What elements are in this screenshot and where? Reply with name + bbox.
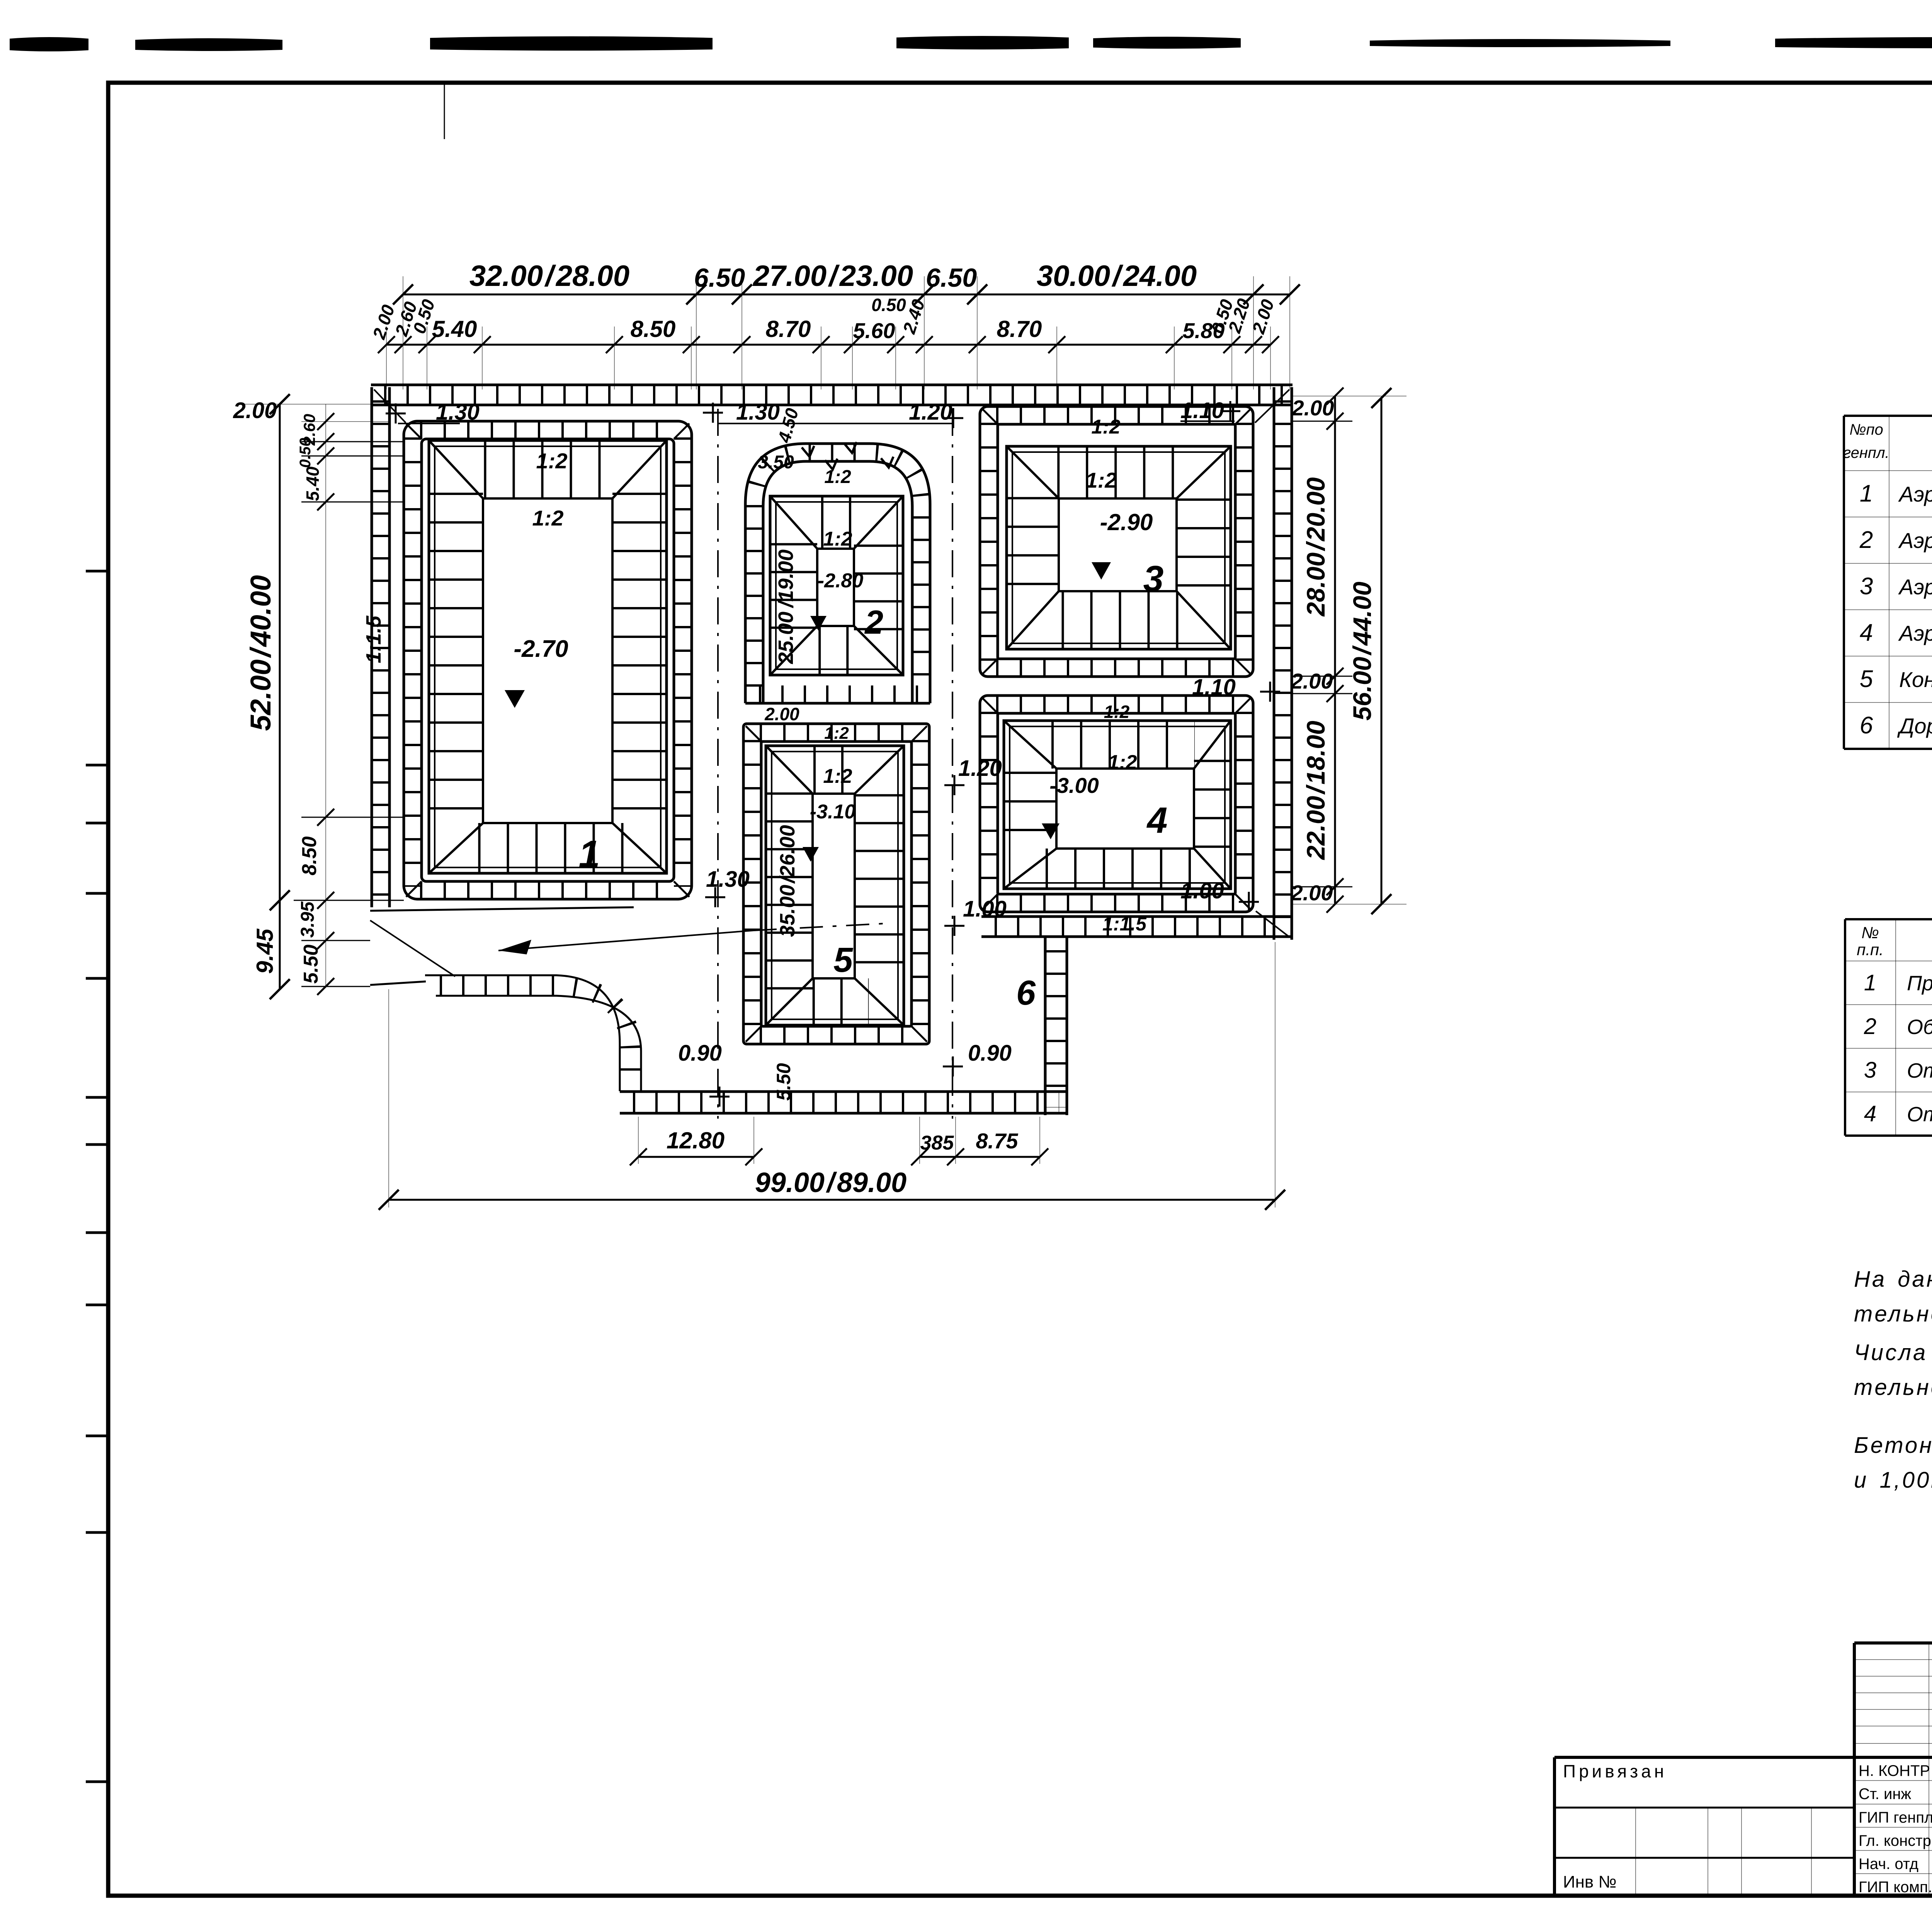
svg-text:№по: №по <box>1849 421 1883 438</box>
svg-text:22.00 / 18.00: 22.00 / 18.00 <box>1301 721 1330 861</box>
svg-text:2.00: 2.00 <box>764 704 799 724</box>
svg-text:1:2: 1:2 <box>1086 468 1117 492</box>
svg-text:1:2: 1:2 <box>532 506 564 530</box>
svg-text:1:2: 1:2 <box>536 449 568 473</box>
svg-text:Аэрируемый биопруд очистки I с: Аэрируемый биопруд очистки I ступени <box>1898 482 1932 506</box>
svg-text:1: 1 <box>1864 970 1876 995</box>
svg-text:На данном чертеже изображен: На данном чертеже изображен генплан соор… <box>1854 1267 1932 1292</box>
svg-text:3.50: 3.50 <box>758 452 794 473</box>
svg-text:1:2: 1:2 <box>823 528 852 550</box>
svg-text:Откос, укрепленный посевом мно: Откос, укрепленный посевом многолетних т… <box>1907 1103 1932 1126</box>
svg-text:тельностью 400 м³/сутки.: тельностью 400 м³/сутки. <box>1854 1375 1932 1400</box>
svg-text:25.00 /19.00: 25.00 /19.00 <box>774 549 798 664</box>
svg-text:1: 1 <box>1860 480 1873 507</box>
svg-text:№: № <box>1861 923 1879 942</box>
svg-text:Привязан: Привязан <box>1563 1761 1667 1781</box>
svg-text:8.75: 8.75 <box>976 1129 1019 1153</box>
svg-text:385: 385 <box>920 1132 954 1154</box>
svg-text:2: 2 <box>1859 527 1873 553</box>
svg-text:Числа в знаменателе относятс: Числа в знаменателе относятся к сооружен… <box>1854 1340 1932 1365</box>
svg-text:0.50: 0.50 <box>297 438 314 468</box>
svg-text:1:2: 1:2 <box>823 765 852 787</box>
svg-text:1:2: 1:2 <box>1104 702 1130 722</box>
svg-text:1.30: 1.30 <box>436 400 480 425</box>
svg-text:1.20: 1.20 <box>958 756 1002 781</box>
svg-text:тельностью 700 м³/сутки: тельностью 700 м³/сутки <box>1854 1301 1932 1327</box>
svg-text:4: 4 <box>1864 1101 1876 1126</box>
svg-text:генпл.: генпл. <box>1843 444 1889 461</box>
svg-text:1.30: 1.30 <box>706 867 750 892</box>
svg-text:-2.90: -2.90 <box>1100 509 1153 535</box>
svg-text:-2.70: -2.70 <box>514 636 568 662</box>
svg-text:8.50: 8.50 <box>298 836 321 875</box>
svg-text:1: 1 <box>578 833 600 876</box>
svg-text:1:2: 1:2 <box>824 467 851 487</box>
svg-text:1.20: 1.20 <box>909 400 952 425</box>
svg-text:Обочина, укрепленная травосмес: Обочина, укрепленная травосмесью <box>1907 1015 1932 1039</box>
svg-text:4: 4 <box>1860 619 1873 646</box>
svg-text:ГИП комп.: ГИП комп. <box>1859 1879 1932 1896</box>
svg-text:Аэрируемый биопруд доочистки I: Аэрируемый биопруд доочистки I ступени <box>1898 575 1932 599</box>
svg-text:12.80: 12.80 <box>667 1128 724 1153</box>
svg-text:1:2: 1:2 <box>824 724 849 743</box>
svg-text:8.70: 8.70 <box>766 316 811 342</box>
svg-text:2.00: 2.00 <box>1292 396 1334 420</box>
svg-text:6: 6 <box>1016 974 1036 1012</box>
svg-text:1:1.5: 1:1.5 <box>1102 913 1147 935</box>
svg-text:и 1,00м ниже уреза воды во все: и 1,00м ниже уреза воды во всех биопруда… <box>1854 1468 1932 1493</box>
svg-text:30.00 / 24.00: 30.00 / 24.00 <box>1037 260 1197 293</box>
svg-text:2.00: 2.00 <box>233 398 277 423</box>
svg-text:Дорога: Дорога <box>1897 714 1932 738</box>
svg-text:1:2: 1:2 <box>1108 751 1137 774</box>
svg-text:5.40: 5.40 <box>432 316 477 342</box>
svg-text:35.00 /26.00: 35.00 /26.00 <box>776 825 799 937</box>
svg-text:Проезд: щебень-15 см; песок-2: Проезд: щебень-15 см; песок-20 см. <box>1907 972 1932 995</box>
svg-text:6.50: 6.50 <box>694 263 745 293</box>
svg-text:0.50: 0.50 <box>871 295 906 315</box>
svg-text:5.50: 5.50 <box>300 944 322 983</box>
svg-text:6: 6 <box>1860 712 1873 739</box>
svg-text:8.50: 8.50 <box>631 316 676 342</box>
svg-text:2.00: 2.00 <box>1291 669 1333 693</box>
svg-text:1.00: 1.00 <box>1180 878 1224 903</box>
svg-text:3: 3 <box>1860 573 1873 600</box>
svg-text:2.00: 2.00 <box>1291 881 1333 905</box>
svg-text:1:1.5: 1:1.5 <box>362 615 385 663</box>
svg-text:56.00 / 44.00: 56.00 / 44.00 <box>1348 582 1376 721</box>
svg-text:3: 3 <box>1864 1058 1876 1083</box>
svg-text:5.50: 5.50 <box>773 1063 794 1101</box>
svg-text:1.10: 1.10 <box>1192 675 1236 700</box>
svg-text:2: 2 <box>864 604 883 641</box>
svg-text:1.10: 1.10 <box>1180 398 1224 423</box>
svg-text:Н. КОНТР: Н. КОНТР <box>1859 1762 1930 1779</box>
svg-text:99.00 / 89.00: 99.00 / 89.00 <box>755 1167 906 1198</box>
svg-text:32.00 / 28.00: 32.00 / 28.00 <box>469 260 629 293</box>
svg-text:ГИП генпл: ГИП генпл <box>1859 1809 1932 1826</box>
svg-text:-3.00: -3.00 <box>1049 773 1099 798</box>
svg-text:5: 5 <box>1860 666 1873 692</box>
svg-text:Аэрируемый биопруд очистки II: Аэрируемый биопруд очистки II ступени <box>1898 528 1932 553</box>
svg-text:5.40: 5.40 <box>303 466 323 501</box>
svg-text:8.70: 8.70 <box>997 316 1042 342</box>
svg-text:3.95: 3.95 <box>298 901 318 938</box>
svg-text:52.00 / 40.00: 52.00 / 40.00 <box>245 575 277 731</box>
svg-text:27.00 / 23.00: 27.00 / 23.00 <box>752 260 913 293</box>
svg-text:9.45: 9.45 <box>252 928 278 974</box>
svg-text:28.00 / 20.00: 28.00 / 20.00 <box>1301 477 1330 617</box>
svg-text:4: 4 <box>1146 800 1168 841</box>
svg-text:1.00: 1.00 <box>963 896 1007 922</box>
svg-text:-2.80: -2.80 <box>818 570 864 592</box>
svg-text:3: 3 <box>1143 558 1164 599</box>
svg-text:п.п.: п.п. <box>1857 940 1884 959</box>
svg-text:Ст. инж: Ст. инж <box>1859 1786 1911 1803</box>
svg-text:6.50: 6.50 <box>926 263 977 293</box>
svg-text:Инв №: Инв № <box>1563 1872 1617 1891</box>
svg-text:Аэрируемый биопруд доочистки I: Аэрируемый биопруд доочистки II ступени <box>1898 621 1932 645</box>
svg-text:1:2: 1:2 <box>1091 416 1120 438</box>
svg-text:0.90: 0.90 <box>678 1041 722 1066</box>
svg-text:Бетонные плиты укладываются но: Бетонные плиты укладываются но полосе ши… <box>1854 1433 1932 1458</box>
svg-text:0.90: 0.90 <box>968 1041 1012 1066</box>
svg-text:Гл. констр: Гл. констр <box>1859 1832 1931 1849</box>
svg-text:1.30: 1.30 <box>736 400 780 425</box>
svg-text:5.60: 5.60 <box>853 318 895 343</box>
svg-text:Контактная емкость: Контактная емкость <box>1899 667 1932 692</box>
svg-text:Нач. отд: Нач. отд <box>1859 1855 1918 1872</box>
svg-text:-3.10: -3.10 <box>810 801 856 823</box>
svg-text:5: 5 <box>833 941 854 980</box>
svg-text:2: 2 <box>1864 1014 1876 1039</box>
svg-text:Откос, укрепленный бетонными п: Откос, укрепленный бетонными плитами <box>1907 1059 1932 1082</box>
